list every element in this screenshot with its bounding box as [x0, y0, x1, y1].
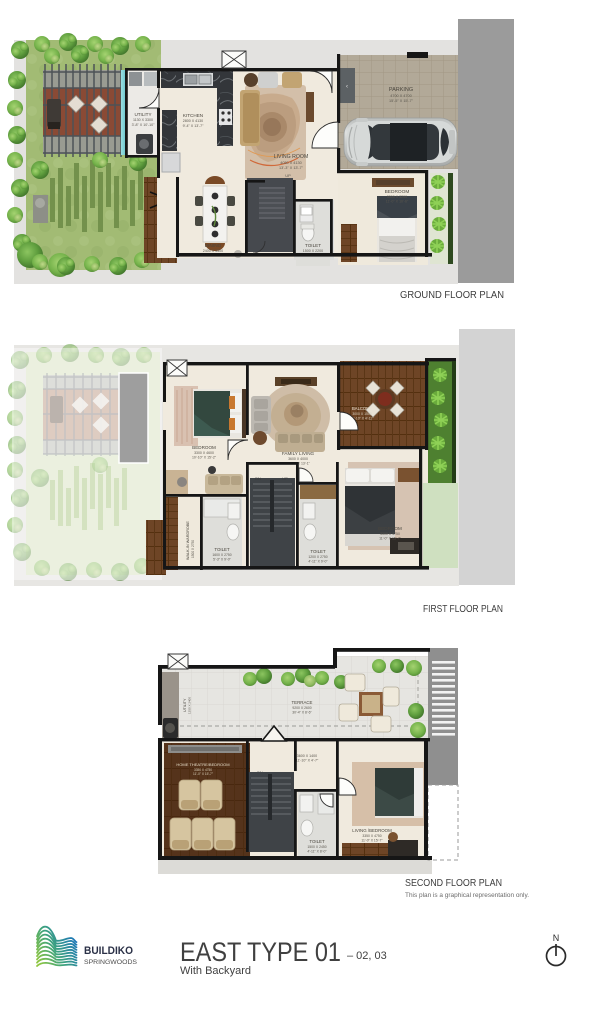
svg-text:13'-3" X 13'-7": 13'-3" X 13'-7" — [279, 166, 304, 170]
svg-text:EAST TYPE 01: EAST TYPE 01 — [180, 937, 341, 967]
svg-text:BALCONY: BALCONY — [352, 406, 372, 411]
svg-text:2400 X 3300: 2400 X 3300 — [203, 249, 223, 253]
svg-text:WALK-IN WARDROBE: WALK-IN WARDROBE — [186, 521, 190, 560]
svg-text:10'-10" X 15'-2": 10'-10" X 15'-2" — [192, 456, 217, 460]
svg-text:BEDROOM: BEDROOM — [192, 445, 216, 450]
svg-text:BUILDIKO: BUILDIKO — [84, 945, 133, 957]
svg-text:TOILET: TOILET — [309, 839, 325, 844]
svg-text:UTILITY: UTILITY — [183, 698, 187, 712]
svg-text:1500 X 2200: 1500 X 2200 — [303, 249, 323, 253]
svg-text:9200 X 2600: 9200 X 2600 — [292, 706, 311, 710]
svg-text:LIVING /BEDROOM: LIVING /BEDROOM — [352, 828, 392, 833]
svg-text:BEDROOM: BEDROOM — [378, 526, 402, 531]
svg-text:1200 X 2750: 1200 X 2750 — [308, 555, 327, 559]
svg-text:1500 X 2450: 1500 X 2450 — [307, 845, 326, 849]
svg-text:LIVING ROOM: LIVING ROOM — [274, 154, 309, 160]
svg-text:SPRINGWOODS: SPRINGWOODS — [84, 959, 137, 966]
svg-text:UTILITY: UTILITY — [134, 112, 151, 117]
svg-text:3000 X 1500: 3000 X 1500 — [352, 412, 371, 416]
svg-text:TOILET: TOILET — [310, 549, 326, 554]
svg-text:TERRACE: TERRACE — [292, 700, 313, 705]
svg-text:This plan is a graphical repre: This plan is a graphical representation … — [405, 893, 529, 899]
svg-text:1500 X 2750: 1500 X 2750 — [191, 540, 195, 558]
svg-text:4'-11" X 8'-0": 4'-11" X 8'-0" — [307, 850, 327, 854]
svg-text:3300 X 4600: 3300 X 4600 — [194, 451, 214, 455]
svg-text:SECOND FLOOR PLAN: SECOND FLOOR PLAN — [405, 877, 502, 889]
svg-text:4700 X 4700: 4700 X 4700 — [390, 94, 412, 98]
svg-text:UP: UP — [282, 476, 288, 481]
svg-text:TOILET: TOILET — [305, 243, 321, 248]
svg-text:11'-0" X 15'-7": 11'-0" X 15'-7" — [379, 537, 402, 541]
svg-text:3'-8" X 10'-10": 3'-8" X 10'-10" — [132, 123, 155, 127]
svg-text:1130 X 3300: 1130 X 3300 — [133, 118, 153, 122]
svg-text:3300 X 3200: 3300 X 3200 — [387, 195, 407, 199]
svg-text:‹: ‹ — [346, 84, 348, 90]
svg-text:1600 X 2750: 1600 X 2750 — [212, 553, 231, 557]
svg-text:GROUND FLOOR PLAN: GROUND FLOOR PLAN — [400, 290, 504, 301]
svg-text:11'-0" X 15'-7": 11'-0" X 15'-7" — [193, 772, 213, 776]
svg-text:UP: UP — [285, 173, 291, 178]
svg-text:PARKING: PARKING — [389, 87, 413, 93]
svg-text:4050 X 4130: 4050 X 4130 — [280, 161, 302, 165]
svg-text:9'-4" X 13'-7": 9'-4" X 13'-7" — [183, 124, 204, 128]
svg-text:HOME THEATRE/BEDROOM: HOME THEATRE/BEDROOM — [176, 762, 229, 767]
svg-text:4'-11" X 9'-0": 4'-11" X 9'-0" — [308, 560, 328, 564]
svg-text:11'-0" X 15'-7": 11'-0" X 15'-7" — [361, 839, 383, 843]
svg-text:2800 X 4130: 2800 X 4130 — [183, 119, 203, 123]
svg-text:– 02, 03: – 02, 03 — [347, 950, 387, 962]
svg-text:With Backyard: With Backyard — [180, 965, 251, 977]
svg-text:3600 X 4000: 3600 X 4000 — [288, 457, 308, 461]
svg-text:11'-0" X 10'-6": 11'-0" X 10'-6" — [386, 200, 409, 204]
svg-text:15'-5" X 15'-7": 15'-5" X 15'-7" — [389, 99, 414, 103]
svg-text:3300 X 4750: 3300 X 4750 — [380, 532, 400, 536]
svg-text:1250 X 2400: 1250 X 2400 — [188, 697, 192, 714]
svg-text:N: N — [553, 933, 560, 943]
svg-text:KITCHEN: KITCHEN — [183, 113, 203, 118]
svg-text:5'-3" X 9'-0": 5'-3" X 9'-0" — [213, 558, 231, 562]
svg-text:FIRST FLOOR PLAN: FIRST FLOOR PLAN — [423, 604, 503, 615]
svg-text:TOILET: TOILET — [214, 547, 230, 552]
svg-text:3350 X 4750: 3350 X 4750 — [362, 834, 381, 838]
svg-text:30'-4" X 8'-6": 30'-4" X 8'-6" — [292, 711, 312, 715]
svg-text:DN: DN — [255, 476, 261, 481]
svg-text:FAMILY LIVING: FAMILY LIVING — [282, 451, 315, 456]
